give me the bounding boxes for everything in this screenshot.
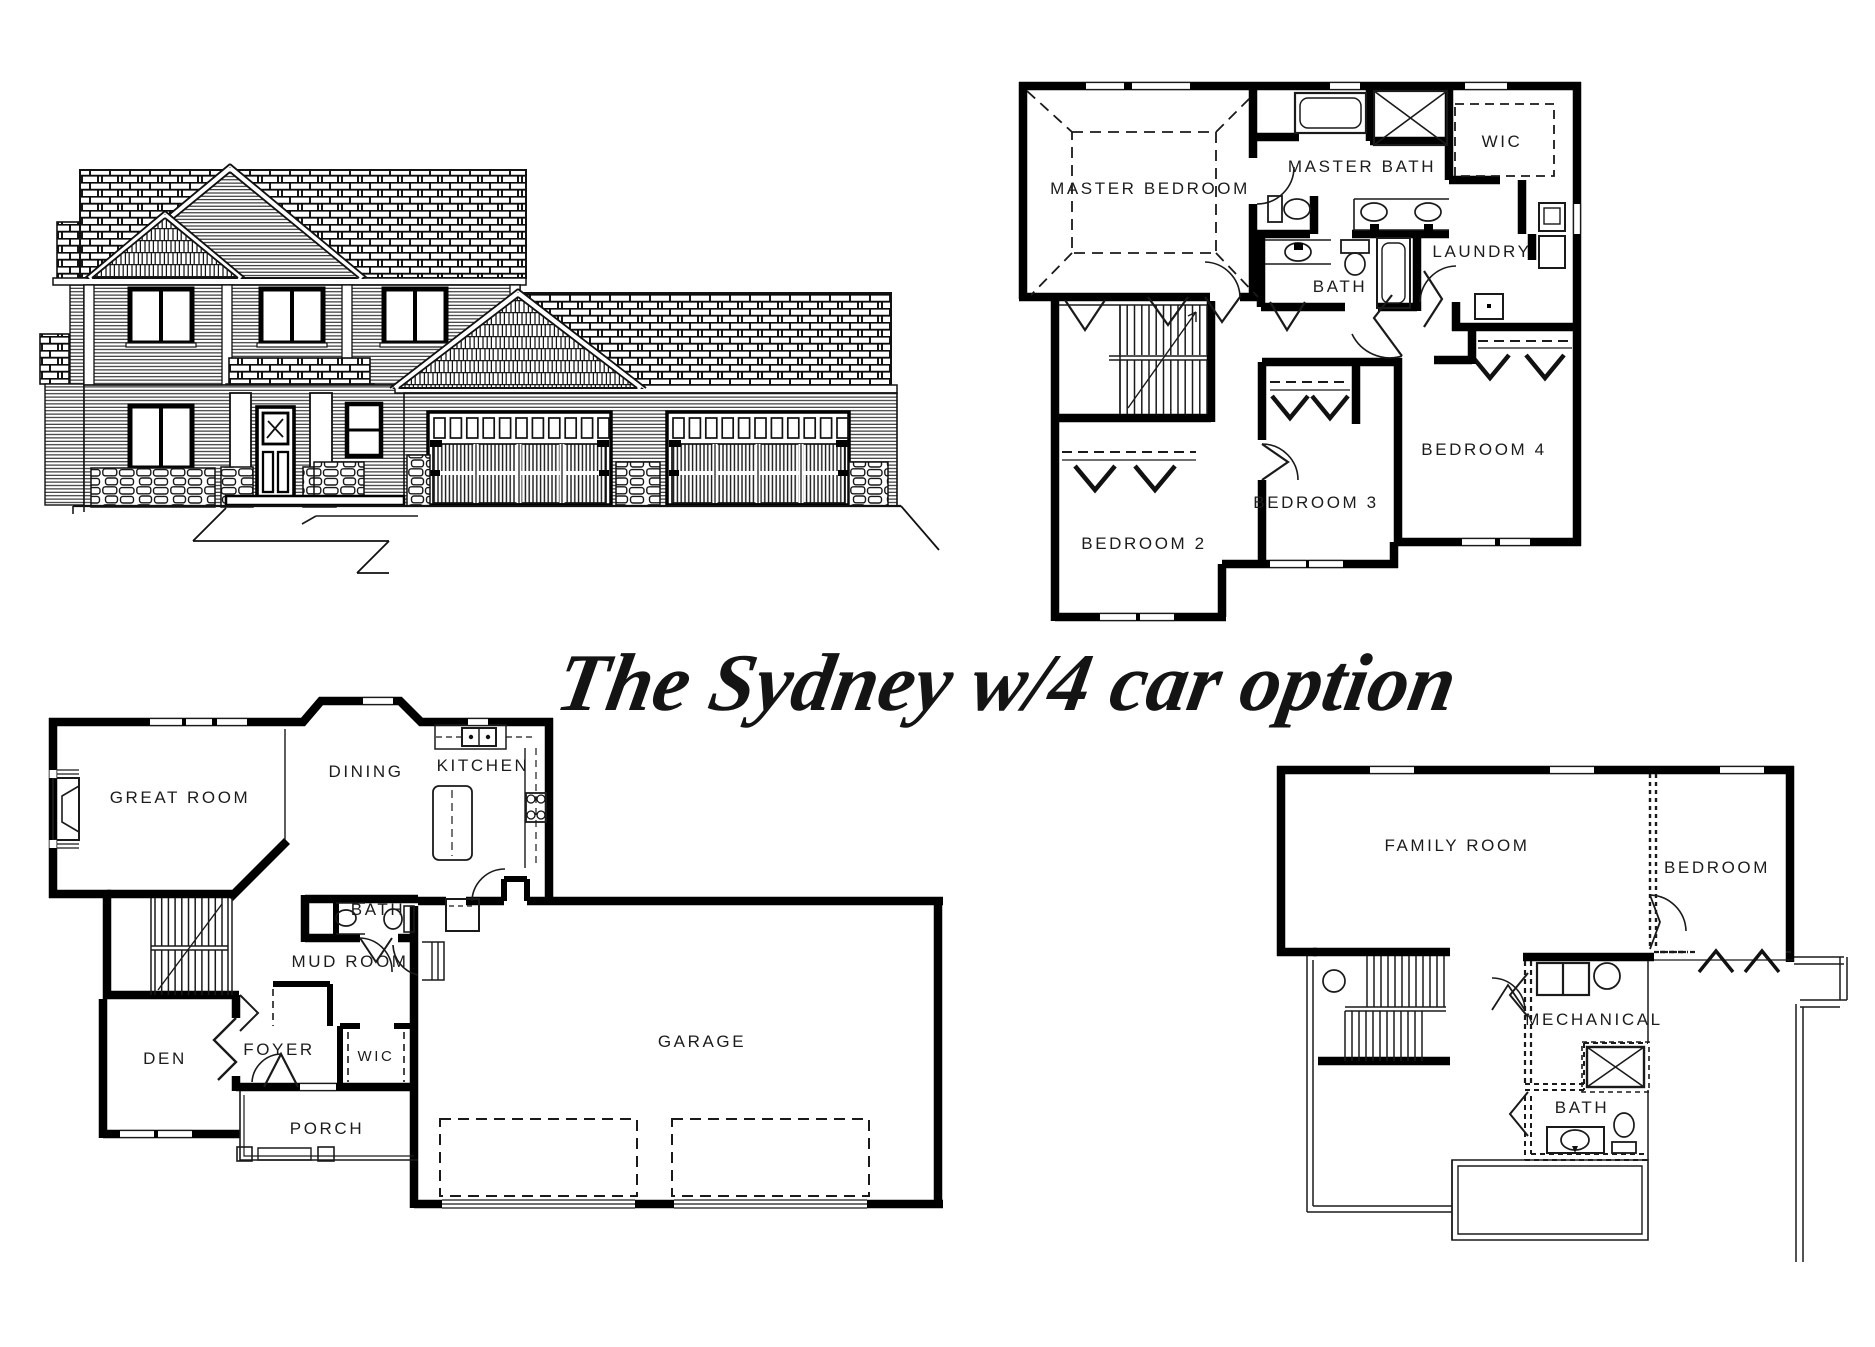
svg-text:GARAGE: GARAGE — [658, 1032, 746, 1051]
svg-text:KITCHEN: KITCHEN — [437, 756, 530, 775]
svg-text:BEDROOM 2: BEDROOM 2 — [1081, 534, 1206, 553]
svg-text:DINING: DINING — [328, 762, 403, 781]
svg-text:MECHANICAL: MECHANICAL — [1525, 1010, 1662, 1029]
svg-text:MUD ROOM: MUD ROOM — [291, 952, 408, 971]
svg-text:BEDROOM 4: BEDROOM 4 — [1421, 440, 1546, 459]
svg-text:PORCH: PORCH — [290, 1119, 364, 1138]
svg-text:BATH: BATH — [1555, 1098, 1609, 1117]
svg-text:The Sydney w/4 car option: The Sydney w/4 car option — [550, 637, 1463, 728]
svg-text:FAMILY ROOM: FAMILY ROOM — [1384, 836, 1529, 855]
svg-text:LAUNDRY: LAUNDRY — [1432, 242, 1531, 261]
svg-text:WIC: WIC — [358, 1048, 395, 1065]
svg-text:MASTER BATH: MASTER BATH — [1288, 157, 1436, 176]
svg-text:MASTER BEDROOM: MASTER BEDROOM — [1050, 179, 1250, 198]
svg-text:BEDROOM: BEDROOM — [1664, 858, 1770, 877]
svg-text:BATH: BATH — [1313, 277, 1367, 296]
svg-text:BEDROOM 3: BEDROOM 3 — [1253, 493, 1378, 512]
svg-text:WIC: WIC — [1482, 132, 1523, 151]
svg-text:BATH: BATH — [351, 900, 405, 919]
svg-text:FOYER: FOYER — [243, 1040, 315, 1059]
svg-text:GREAT ROOM: GREAT ROOM — [110, 788, 251, 807]
svg-text:DEN: DEN — [143, 1049, 187, 1068]
